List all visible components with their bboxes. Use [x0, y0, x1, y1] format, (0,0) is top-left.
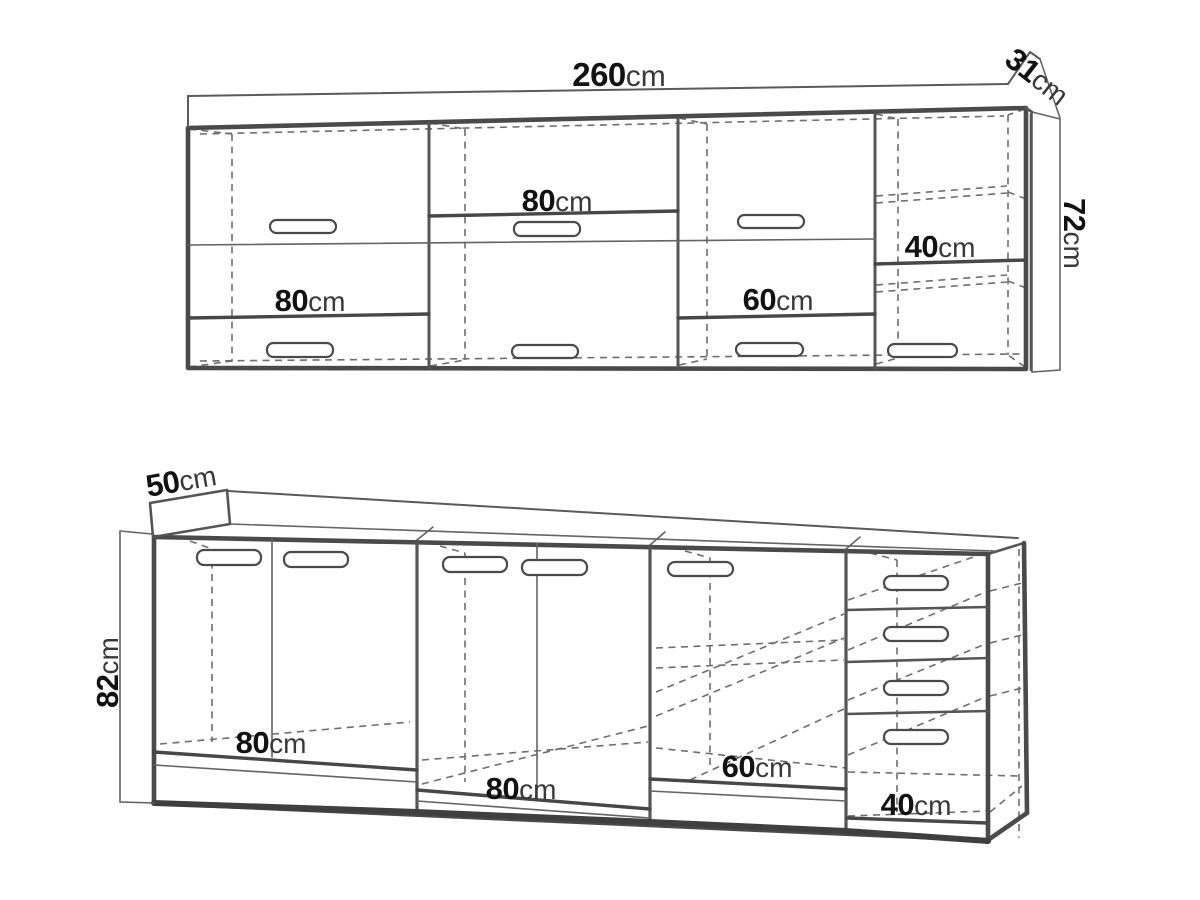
drawer-handle: [884, 730, 948, 744]
upper-40-section-label: 40cm: [905, 229, 976, 264]
lower-cabinet-dividers: [154, 539, 989, 841]
door-handle: [443, 557, 507, 572]
door-handle: [522, 560, 587, 575]
upper-middle-section-label: 80cm: [522, 183, 593, 218]
upper-width-dimension-label: 260cm: [572, 56, 666, 93]
upper-cabinet: 260cm 31cm 72cm 80cm 80cm 60cm 40cm: [188, 41, 1092, 372]
door-handle: [284, 552, 348, 567]
upper-left-section-label: 80cm: [275, 283, 346, 318]
door-handle: [514, 222, 580, 236]
upper-height-bracket: [1026, 108, 1060, 372]
drawer-handle: [884, 681, 948, 695]
lower-cabinet: 50cm 82cm 80cm 80cm 60cm 40cm: [90, 457, 1027, 841]
drawer-handle: [884, 576, 948, 590]
lower-middle-section-label: 80cm: [486, 771, 557, 806]
lower-left-section-label: 80cm: [236, 725, 307, 760]
door-handle: [668, 562, 733, 576]
upper-cabinet-front: [188, 108, 1026, 369]
lower-height-dimension-label: 82cm: [90, 637, 125, 708]
lower-depth-dimension-label: 50cm: [143, 457, 219, 504]
upper-60-section-label: 60cm: [743, 282, 814, 317]
lower-cabinet-handles: [197, 550, 948, 744]
lower-40-section-label: 40cm: [881, 787, 952, 822]
drawer-handle: [884, 627, 948, 641]
door-handle: [888, 344, 957, 357]
door-handle: [267, 343, 333, 357]
kitchen-cabinet-dimension-diagram: 260cm 31cm 72cm 80cm 80cm 60cm 40cm: [0, 0, 1200, 900]
lower-60-section-label: 60cm: [722, 749, 793, 784]
upper-height-dimension-label: 72cm: [1057, 198, 1092, 269]
door-handle: [736, 343, 803, 356]
door-handle: [738, 215, 804, 228]
door-handle: [270, 220, 336, 233]
door-handle: [197, 550, 261, 565]
door-handle: [512, 345, 578, 358]
diagram-canvas: 260cm 31cm 72cm 80cm 80cm 60cm 40cm: [0, 0, 1200, 900]
lower-height-bracket: [120, 531, 154, 803]
upper-depth-dimension-label: 31cm: [999, 41, 1076, 112]
lower-cabinet-front: [154, 537, 988, 840]
